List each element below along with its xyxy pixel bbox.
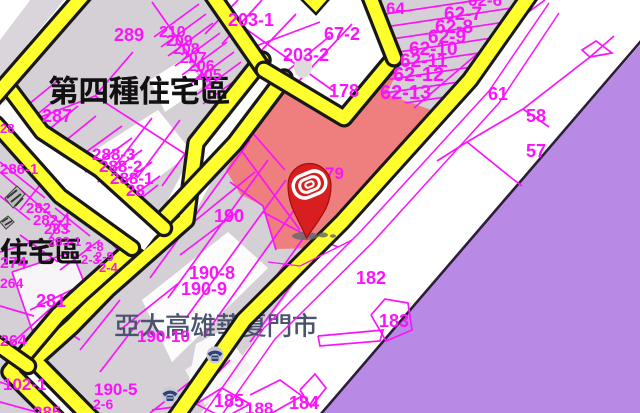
svg-text:182: 182 bbox=[356, 268, 386, 288]
svg-text:61: 61 bbox=[488, 84, 508, 104]
svg-text:28: 28 bbox=[126, 181, 145, 200]
svg-text:190: 190 bbox=[214, 206, 244, 226]
svg-text:274: 274 bbox=[0, 255, 27, 272]
svg-text:64: 64 bbox=[386, 0, 405, 18]
svg-text:285: 285 bbox=[33, 403, 61, 413]
svg-text:183: 183 bbox=[379, 311, 409, 331]
svg-text:190-10: 190-10 bbox=[137, 327, 190, 346]
svg-text:203-1: 203-1 bbox=[228, 10, 274, 30]
svg-text:185: 185 bbox=[214, 391, 244, 411]
svg-text:283-1: 283-1 bbox=[48, 234, 81, 249]
svg-text:2-4: 2-4 bbox=[99, 260, 119, 275]
svg-text:190-9: 190-9 bbox=[181, 279, 227, 299]
svg-text:184: 184 bbox=[289, 393, 319, 413]
svg-text:28: 28 bbox=[0, 121, 14, 136]
svg-text:57: 57 bbox=[526, 141, 546, 161]
svg-text:2: 2 bbox=[204, 76, 212, 92]
svg-text:286-1: 286-1 bbox=[0, 161, 38, 178]
svg-text:289: 289 bbox=[114, 25, 144, 45]
svg-text:102-1: 102-1 bbox=[3, 375, 46, 394]
svg-text:203-2: 203-2 bbox=[283, 45, 329, 65]
svg-text:2-3: 2-3 bbox=[81, 252, 100, 267]
svg-text:178: 178 bbox=[329, 81, 359, 101]
svg-text:264: 264 bbox=[0, 333, 27, 350]
svg-text:67-2: 67-2 bbox=[324, 24, 360, 44]
svg-text:62-13: 62-13 bbox=[380, 82, 431, 104]
svg-text:264: 264 bbox=[0, 275, 24, 291]
svg-text:2-6: 2-6 bbox=[93, 396, 113, 412]
svg-text:281: 281 bbox=[36, 291, 66, 311]
svg-text:287: 287 bbox=[42, 106, 72, 126]
svg-text:188: 188 bbox=[245, 399, 273, 413]
svg-text:58: 58 bbox=[526, 106, 546, 126]
